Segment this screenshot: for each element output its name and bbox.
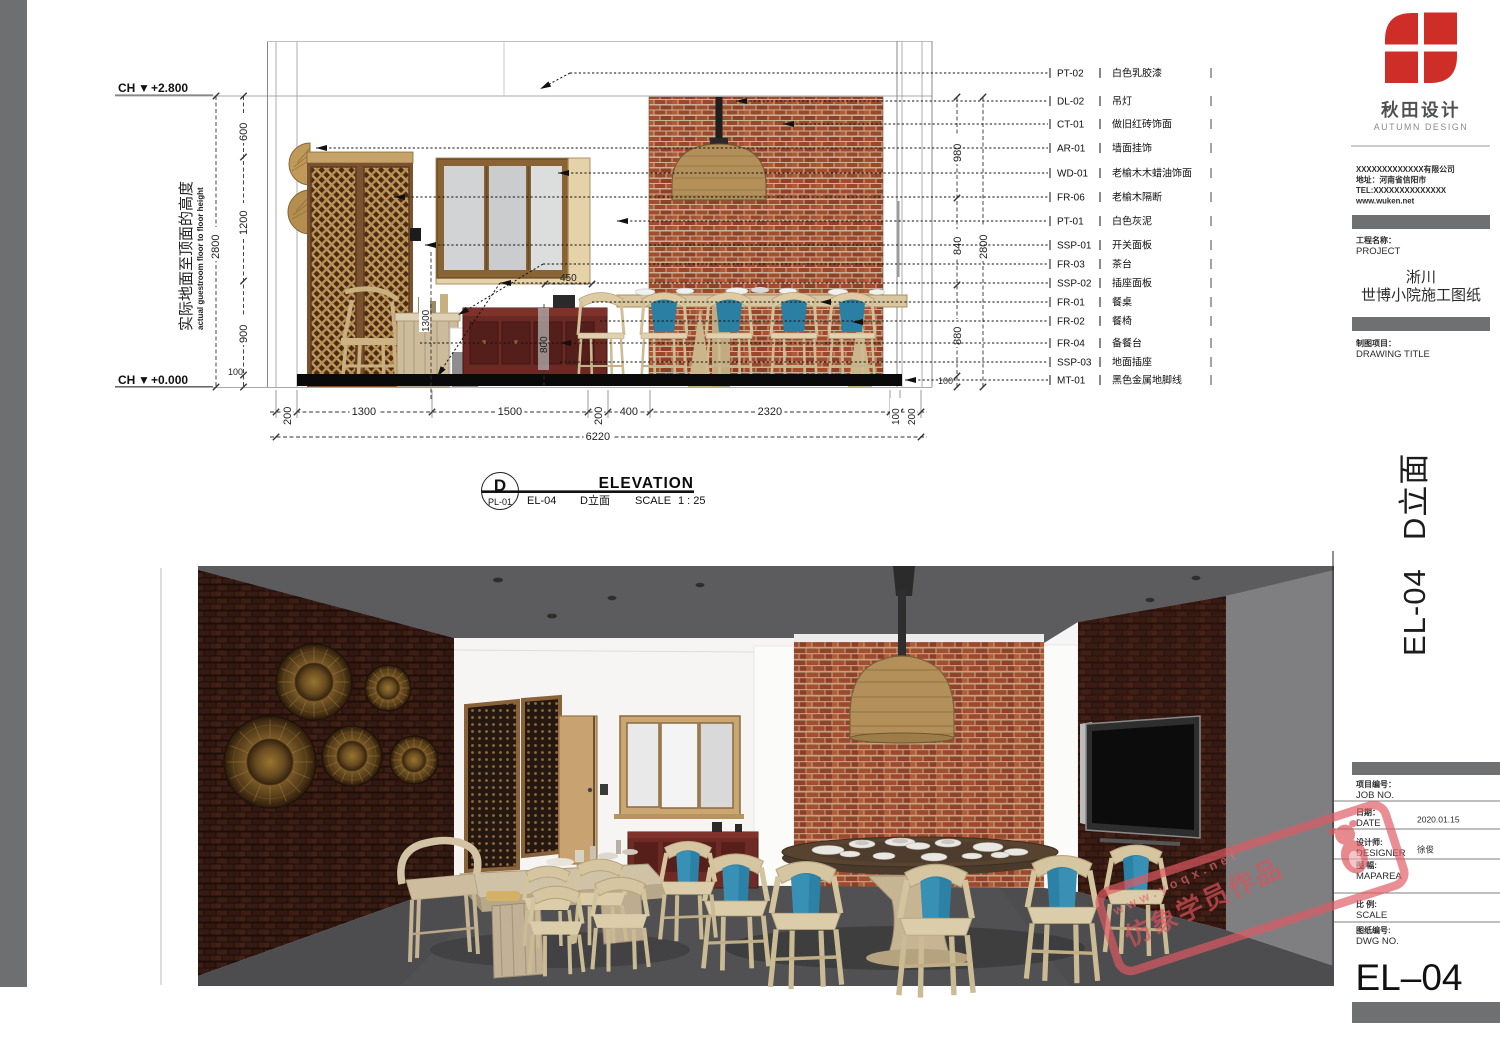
svg-text:老榆木木蜡油饰面: 老榆木木蜡油饰面 <box>1112 167 1192 180</box>
svg-text:840: 840 <box>952 237 964 255</box>
svg-text:FR-01: FR-01 <box>1057 298 1085 309</box>
svg-text:EL-04: EL-04 <box>1397 568 1432 656</box>
svg-text:ELEVATION: ELEVATION <box>599 475 694 492</box>
svg-text:AR-01: AR-01 <box>1057 144 1086 155</box>
svg-text:世博小院施工图纸: 世博小院施工图纸 <box>1361 286 1481 304</box>
svg-text:项目编号：: 项目编号： <box>1356 779 1396 789</box>
svg-text:2320: 2320 <box>758 406 782 418</box>
svg-text:MT-01: MT-01 <box>1057 376 1086 387</box>
svg-text:老榆木隔断: 老榆木隔断 <box>1112 191 1162 204</box>
svg-text:▼: ▼ <box>138 81 150 95</box>
svg-text:餐桌: 餐桌 <box>1112 296 1132 309</box>
svg-text:980: 980 <box>952 144 964 162</box>
svg-text:FR-03: FR-03 <box>1057 260 1085 271</box>
svg-text:白色乳胶漆: 白色乳胶漆 <box>1112 67 1162 80</box>
svg-text:备餐台: 备餐台 <box>1112 337 1142 350</box>
svg-text:白色灰泥: 白色灰泥 <box>1112 215 1152 228</box>
svg-text:徐俊: 徐俊 <box>1417 845 1435 855</box>
svg-text:DWG NO.: DWG NO. <box>1356 936 1399 947</box>
svg-text:▼: ▼ <box>138 373 150 387</box>
svg-text:吊灯: 吊灯 <box>1112 96 1132 108</box>
svg-text:做旧红砖饰面: 做旧红砖饰面 <box>1112 118 1172 131</box>
svg-text:WD-01: WD-01 <box>1057 169 1089 180</box>
svg-text:PT-02: PT-02 <box>1057 69 1084 80</box>
svg-text:1500: 1500 <box>498 406 522 418</box>
svg-text:地面插座: 地面插座 <box>1112 356 1152 369</box>
svg-text:秋田设计: 秋田设计 <box>1381 100 1461 120</box>
svg-text:800: 800 <box>539 336 550 353</box>
svg-text:制图项目：: 制图项目： <box>1356 338 1396 348</box>
svg-text:100: 100 <box>228 367 243 377</box>
svg-text:+0.000: +0.000 <box>151 373 188 387</box>
svg-text:SSP-02: SSP-02 <box>1057 279 1092 290</box>
svg-text:AUTUMN DESIGN: AUTUMN DESIGN <box>1374 122 1469 132</box>
svg-text:100: 100 <box>891 408 902 425</box>
svg-text:TEL:XXXXXXXXXXXXXX: TEL:XXXXXXXXXXXXXX <box>1356 186 1447 195</box>
svg-text:900: 900 <box>238 325 250 343</box>
svg-text:CH: CH <box>118 373 135 387</box>
svg-text:DRAWING TITLE: DRAWING TITLE <box>1356 349 1430 360</box>
svg-text:1300: 1300 <box>421 309 432 332</box>
svg-text:2020.01.15: 2020.01.15 <box>1417 815 1460 825</box>
svg-text:450: 450 <box>560 273 577 284</box>
svg-text:CT-01: CT-01 <box>1057 120 1085 131</box>
svg-text:6220: 6220 <box>586 431 610 443</box>
svg-text:PT-01: PT-01 <box>1057 217 1084 228</box>
svg-text:100: 100 <box>938 376 953 386</box>
svg-text:黑色金属地脚线: 黑色金属地脚线 <box>1112 374 1182 387</box>
svg-text:200: 200 <box>593 407 605 425</box>
svg-text:2800: 2800 <box>210 235 222 259</box>
svg-text:DATE: DATE <box>1356 818 1381 829</box>
svg-text:图纸编号:: 图纸编号: <box>1356 925 1391 935</box>
svg-text:400: 400 <box>620 406 638 418</box>
svg-text:DL-02: DL-02 <box>1057 97 1085 108</box>
svg-text:茶台: 茶台 <box>1112 258 1132 271</box>
svg-text:CH: CH <box>118 81 135 95</box>
svg-text:插座面板: 插座面板 <box>1112 277 1152 290</box>
svg-text:FR-06: FR-06 <box>1057 193 1085 204</box>
svg-text:1 : 25: 1 : 25 <box>678 495 706 507</box>
svg-text:MAPAREA: MAPAREA <box>1356 871 1402 882</box>
svg-text:200: 200 <box>282 407 294 425</box>
svg-text:200: 200 <box>907 408 918 425</box>
svg-text:1300: 1300 <box>352 406 376 418</box>
svg-text:SCALE: SCALE <box>1356 910 1387 921</box>
svg-text:FR-04: FR-04 <box>1057 339 1085 350</box>
svg-text:EL-04: EL-04 <box>527 495 556 507</box>
svg-text:工程名称：: 工程名称： <box>1356 235 1396 245</box>
svg-text:PL-01: PL-01 <box>488 497 512 507</box>
svg-text:600: 600 <box>238 123 250 141</box>
svg-text:餐椅: 餐椅 <box>1112 315 1132 328</box>
svg-text:880: 880 <box>952 327 964 345</box>
svg-text:墙面挂饰: 墙面挂饰 <box>1112 142 1152 155</box>
svg-text:2800: 2800 <box>978 235 990 259</box>
svg-text:D立面: D立面 <box>1397 453 1432 540</box>
svg-text:EL–04: EL–04 <box>1356 957 1463 998</box>
svg-text:SCALE: SCALE <box>635 495 671 507</box>
svg-text:JOB NO.: JOB NO. <box>1356 790 1394 801</box>
svg-text:XXXXXXXXXXXXX有限公司: XXXXXXXXXXXXX有限公司 <box>1356 164 1455 174</box>
svg-text:+2.800: +2.800 <box>151 81 188 95</box>
svg-text:SSP-01: SSP-01 <box>1057 241 1092 252</box>
svg-text:PROJECT: PROJECT <box>1356 246 1401 257</box>
svg-text:SSP-03: SSP-03 <box>1057 358 1092 369</box>
svg-text:地址：河南省信阳市: 地址：河南省信阳市 <box>1356 175 1426 185</box>
svg-text:开关面板: 开关面板 <box>1112 239 1152 252</box>
svg-text:www.wuken.net: www.wuken.net <box>1355 197 1415 206</box>
svg-text:D立面: D立面 <box>580 493 610 507</box>
svg-text:淅川: 淅川 <box>1406 269 1436 286</box>
svg-text:FR-02: FR-02 <box>1057 317 1085 328</box>
svg-text:1200: 1200 <box>238 211 250 235</box>
svg-text:actual guestroom floor to floo: actual guestroom floor to floor height <box>196 187 205 330</box>
svg-text:实际地面至顶面的高度: 实际地面至顶面的高度 <box>178 181 195 331</box>
